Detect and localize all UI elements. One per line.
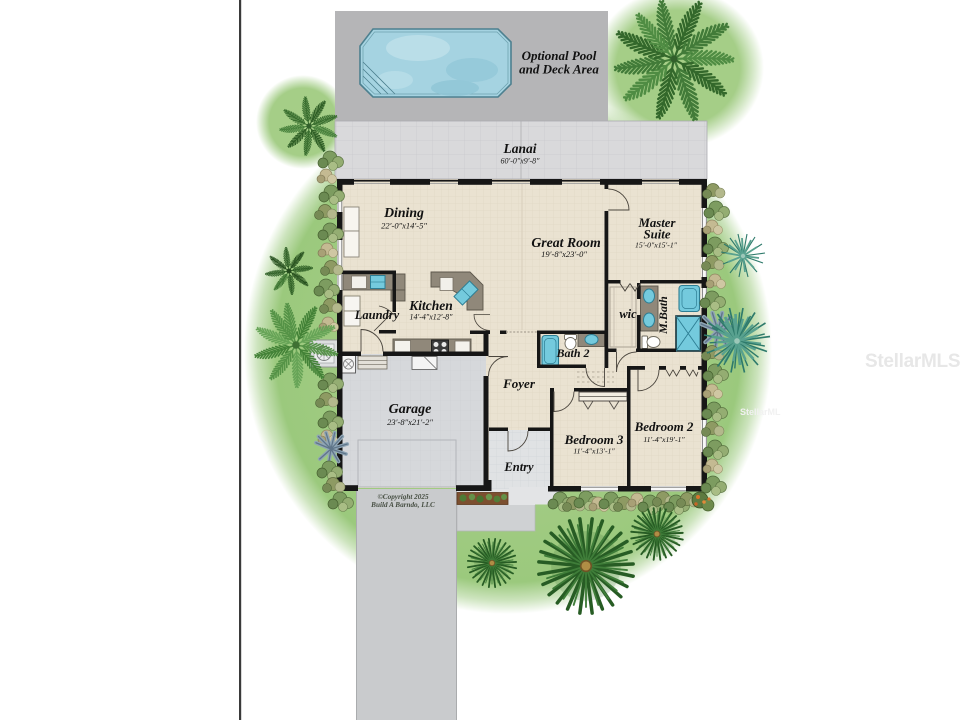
svg-text:60′-0″x9′-8″: 60′-0″x9′-8″ [500, 157, 540, 166]
svg-text:Build A Barndo, LLC: Build A Barndo, LLC [370, 501, 435, 509]
svg-text:11′-4″x13′-1″: 11′-4″x13′-1″ [573, 447, 615, 456]
svg-text:Entry: Entry [503, 460, 534, 474]
svg-text:and Deck Area: and Deck Area [519, 62, 599, 77]
svg-text:14′-4″x12′-8″: 14′-4″x12′-8″ [409, 313, 453, 322]
svg-text:©Copyright 2025: ©Copyright 2025 [377, 493, 429, 501]
svg-text:Lanai: Lanai [502, 141, 536, 156]
svg-text:19′-8″x23′-0″: 19′-8″x23′-0″ [541, 249, 587, 259]
svg-text:Suite: Suite [643, 228, 670, 242]
svg-text:Bedroom 2: Bedroom 2 [634, 419, 694, 434]
svg-text:Bedroom 3: Bedroom 3 [564, 432, 624, 447]
svg-text:Laundry: Laundry [354, 308, 400, 322]
svg-text:11′-4″x19′-1″: 11′-4″x19′-1″ [643, 435, 685, 444]
svg-text:22′-0″x14′-5″: 22′-0″x14′-5″ [381, 221, 427, 231]
svg-text:Dining: Dining [383, 205, 424, 220]
svg-text:23′-8″x21′-2″: 23′-8″x21′-2″ [387, 417, 433, 427]
svg-text:Foyer: Foyer [502, 376, 536, 391]
svg-text:Bath 2: Bath 2 [555, 346, 589, 360]
svg-text:StellarML: StellarML [740, 407, 781, 417]
svg-text:wic: wic [619, 307, 637, 321]
svg-text:15′-0″x15′-1″: 15′-0″x15′-1″ [635, 241, 678, 250]
svg-text:M.Bath: M.Bath [656, 296, 670, 335]
svg-text:StellarMLS: StellarMLS [865, 351, 960, 372]
svg-text:Great Room: Great Room [531, 235, 601, 250]
svg-text:Kitchen: Kitchen [408, 298, 453, 313]
svg-text:Garage: Garage [389, 402, 432, 417]
